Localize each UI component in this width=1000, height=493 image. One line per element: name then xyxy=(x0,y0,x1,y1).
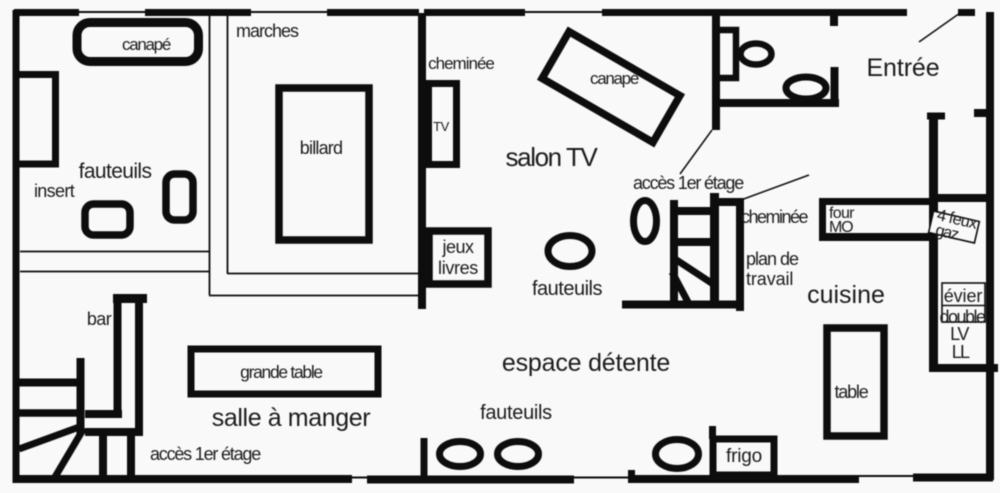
svg-text:MO: MO xyxy=(829,219,853,236)
svg-text:plan de: plan de xyxy=(746,249,799,269)
svg-text:salle à manger: salle à manger xyxy=(212,404,370,432)
svg-text:salon TV: salon TV xyxy=(506,142,599,172)
svg-text:espace détente: espace détente xyxy=(502,349,670,377)
svg-text:jeux: jeux xyxy=(441,237,474,257)
svg-text:TV: TV xyxy=(433,119,450,134)
svg-text:LL: LL xyxy=(952,342,970,362)
svg-text:LV: LV xyxy=(950,324,969,344)
svg-text:cuisine: cuisine xyxy=(807,281,885,309)
svg-text:canapé: canapé xyxy=(122,35,171,54)
svg-text:marches: marches xyxy=(236,21,299,41)
svg-text:fauteuils: fauteuils xyxy=(480,402,552,424)
svg-text:accès 1er étage: accès 1er étage xyxy=(633,173,744,193)
svg-text:cheminée: cheminée xyxy=(741,207,809,227)
svg-text:table: table xyxy=(834,382,868,402)
svg-text:canapé: canapé xyxy=(590,69,639,88)
svg-text:livres: livres xyxy=(438,258,478,278)
svg-text:grande table: grande table xyxy=(240,362,322,382)
svg-text:accès 1er étage: accès 1er étage xyxy=(150,444,261,464)
svg-text:insert: insert xyxy=(34,181,75,201)
svg-text:frigo: frigo xyxy=(726,446,762,467)
svg-text:évier: évier xyxy=(944,286,983,306)
svg-text:travail: travail xyxy=(746,269,793,289)
svg-text:fauteuils: fauteuils xyxy=(79,160,152,183)
svg-text:Entrée: Entrée xyxy=(866,54,939,82)
svg-text:fauteuils: fauteuils xyxy=(532,278,602,300)
svg-text:bar: bar xyxy=(87,309,112,329)
svg-text:billard: billard xyxy=(300,138,342,158)
svg-text:cheminée: cheminée xyxy=(428,54,494,73)
